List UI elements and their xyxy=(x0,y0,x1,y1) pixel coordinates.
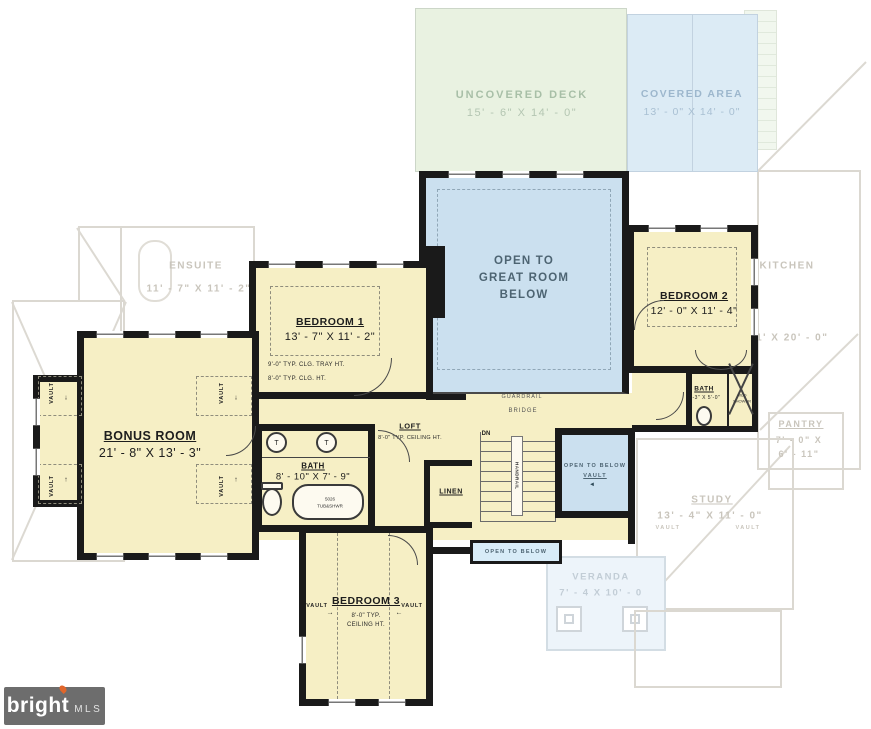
vault-arrow-down: ↓ xyxy=(234,395,238,402)
bedroom1-label: BEDROOM 1 xyxy=(296,316,364,328)
great-room-line3: BELOW xyxy=(500,289,549,301)
window xyxy=(700,225,728,232)
faded-study-dims: 13' - 4" X 11' - 0" xyxy=(657,511,763,522)
faded-kitchen-label: KITCHEN xyxy=(760,261,815,272)
shower-label-line2: SHOWER xyxy=(733,399,751,404)
covered-area-label: COVERED AREA xyxy=(641,88,743,100)
faded-study-vault-right: VAULT xyxy=(735,525,760,531)
vault-arrow-up: ↑ xyxy=(234,477,238,484)
bath2-label: BATH xyxy=(694,386,714,393)
vault-arrow-down: ↓ xyxy=(64,395,68,402)
vault-marker: VAULT xyxy=(306,603,328,609)
logo-brand-text: bright xyxy=(7,694,69,718)
logo-mls-text: MLS xyxy=(74,704,102,715)
bedroom2-label: BEDROOM 2 xyxy=(660,290,728,302)
bridge-label: BRIDGE xyxy=(508,408,537,414)
vault-marker: VAULT xyxy=(49,475,55,497)
window xyxy=(751,258,758,286)
sink-icon: T xyxy=(316,432,337,453)
window xyxy=(96,331,124,338)
bath-main-dims: 8' - 10" X 7' - 9" xyxy=(276,472,350,483)
tub-icon: 5026 TUB&SHWR xyxy=(292,484,364,520)
bedroom3-label: BEDROOM 3 xyxy=(332,595,400,607)
window xyxy=(299,636,306,664)
bedroom1-note2: 8'-0" TYP. CLG. HT. xyxy=(268,376,326,382)
bedroom1-note1: 9'-0" TYP. CLG. TRAY HT. xyxy=(268,362,345,368)
vault-zone xyxy=(38,376,82,416)
wall-segment xyxy=(628,514,635,544)
window xyxy=(648,225,676,232)
window xyxy=(268,261,296,268)
wall-segment xyxy=(433,547,470,554)
window xyxy=(322,261,350,268)
window xyxy=(556,171,584,178)
open-below-vault-arrow: ◄ xyxy=(589,482,595,488)
bath-main-label: BATH xyxy=(301,462,325,471)
bonus-room-dims: 21' - 8" X 13' - 3" xyxy=(99,446,201,460)
window xyxy=(751,308,758,336)
open-below-vault-line2: VAULT xyxy=(583,473,607,479)
window xyxy=(200,553,228,560)
great-room-line1: OPEN TO xyxy=(494,255,554,267)
toilet-icon xyxy=(262,488,282,516)
window xyxy=(33,448,40,476)
dn-label: DN xyxy=(482,431,491,437)
window xyxy=(378,699,406,706)
window xyxy=(33,398,40,426)
vault-marker: VAULT xyxy=(219,382,225,404)
vanity-counter xyxy=(262,457,370,458)
faded-lower-right xyxy=(634,610,782,688)
faded-ensuite-dims: 11' - 7" X 11' - 2" xyxy=(146,284,251,295)
sink-icon: T xyxy=(266,432,287,453)
shower-stall: MUD SHOWER xyxy=(727,374,752,426)
uncovered-deck-dims: 15' - 6" X 14' - 0" xyxy=(467,107,577,119)
floor-plan: ENSUITE 11' - 7" X 11' - 2" KITCHEN 11' … xyxy=(0,0,871,729)
faded-study-label: STUDY xyxy=(691,495,732,506)
window xyxy=(96,553,124,560)
faded-study-vault-left: VAULT xyxy=(655,525,680,531)
faded-veranda-dims: 7' - 4 X 10' - 0 xyxy=(559,588,642,599)
wall-segment xyxy=(632,425,688,432)
faded-veranda-label: VERANDA xyxy=(572,572,629,583)
window xyxy=(502,171,530,178)
stair-handrail: HANDRAIL xyxy=(511,436,523,516)
bedroom3-note2: CEILING HT. xyxy=(347,622,385,628)
window xyxy=(148,553,176,560)
faded-kitchen-dims: 11' X 20' - 0" xyxy=(750,333,829,344)
window xyxy=(200,331,228,338)
vault-marker: VAULT xyxy=(49,382,55,404)
great-room-line2: GREAT ROOM xyxy=(479,272,569,284)
vault-arrow-right: → xyxy=(327,610,334,617)
tub-label-line2: TUB&SHWR xyxy=(317,504,343,509)
vault-arrow-up: ↑ xyxy=(64,477,68,484)
vault-arrow-left: ← xyxy=(396,610,403,617)
vault-zone xyxy=(38,464,82,504)
loft-label: LOFT xyxy=(399,422,421,431)
faded-left-top xyxy=(78,226,122,302)
window xyxy=(148,331,176,338)
bedroom3-vault-line xyxy=(337,533,338,699)
toilet-icon xyxy=(696,406,712,426)
window xyxy=(328,699,356,706)
bedroom1-dims: 13' - 7" X 11' - 2" xyxy=(285,331,375,343)
vault-marker: VAULT xyxy=(219,475,225,497)
open-to-below-label: OPEN TO BELOW xyxy=(485,549,547,555)
toilet-tank xyxy=(261,482,283,490)
linen-label: LINEN xyxy=(439,489,463,496)
open-below-vault-line1: OPEN TO BELOW xyxy=(564,463,626,469)
faded-pantry-label: PANTRY xyxy=(779,419,824,429)
shower-label-line1: MUD xyxy=(737,393,746,398)
covered-area-dims: 13' - 0" X 14' - 0" xyxy=(643,106,740,118)
faded-column xyxy=(556,606,582,632)
window xyxy=(376,261,404,268)
handrail-label: HANDRAIL xyxy=(515,462,520,490)
window xyxy=(448,171,476,178)
bath2-dims: 8'-3" X 5'-0" xyxy=(688,395,721,401)
faded-ensuite-label: ENSUITE xyxy=(169,261,223,272)
guardrail-label: GUARDRAIL xyxy=(501,394,542,400)
tub-label-line1: 5026 xyxy=(325,497,335,502)
bedroom3-note1: 8'-0" TYP. xyxy=(351,613,380,619)
stairwell: HANDRAIL DN xyxy=(472,428,562,540)
bonus-room-label: BONUS ROOM xyxy=(104,429,197,443)
bright-mls-logo: bright MLS xyxy=(4,687,105,725)
uncovered-deck-label: UNCOVERED DECK xyxy=(456,89,589,101)
vault-marker: VAULT xyxy=(401,603,423,609)
